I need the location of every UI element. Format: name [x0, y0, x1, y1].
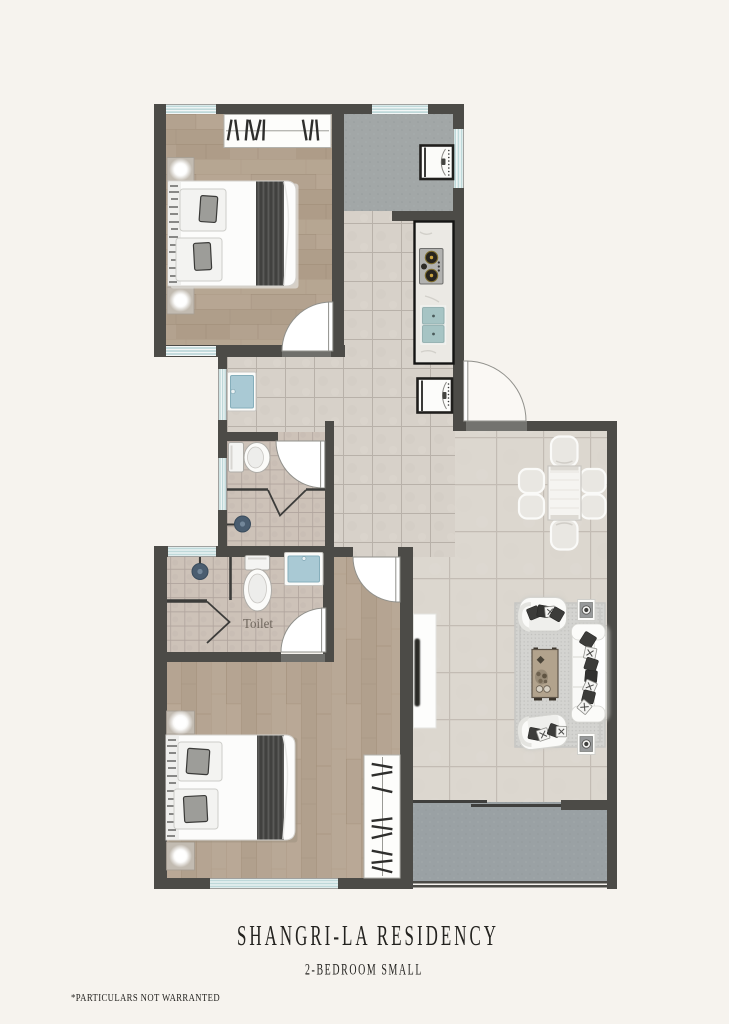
svg-text:SHANGRI-LA RESIDENCY: SHANGRI-LA RESIDENCY — [237, 921, 499, 952]
svg-text:*PARTICULARS NOT WARRANTED: *PARTICULARS NOT WARRANTED — [71, 992, 220, 1004]
svg-text:Toilet: Toilet — [243, 616, 273, 631]
svg-text:2-BEDROOM SMALL: 2-BEDROOM SMALL — [305, 962, 423, 979]
